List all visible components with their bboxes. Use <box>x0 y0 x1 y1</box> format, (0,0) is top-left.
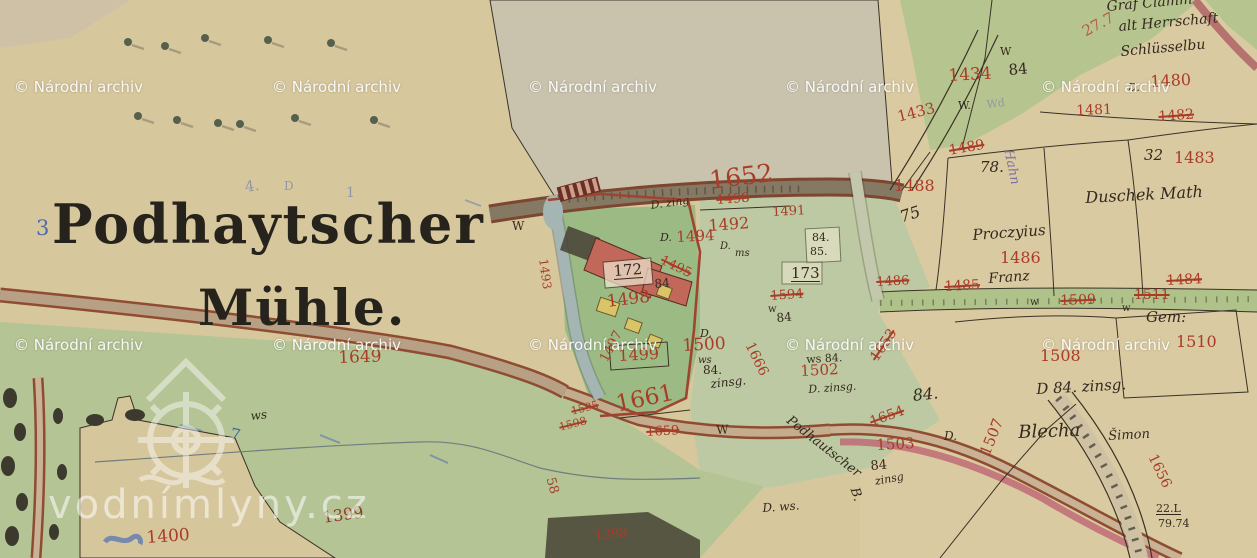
map-label: 78. <box>980 160 1004 175</box>
map-label: w <box>1122 304 1131 314</box>
map-label: 1434 <box>948 66 992 85</box>
map-label: Blecha <box>1018 422 1081 442</box>
map-label: 84 <box>654 277 670 290</box>
map-label: 32 <box>1144 148 1163 163</box>
map-label: 1510 <box>1176 334 1217 350</box>
map-label: alt Herrschaft <box>1118 11 1219 34</box>
map-label: ms <box>735 249 750 259</box>
map-label: Schlüsselbu <box>1120 38 1206 59</box>
map-label: 1507 <box>978 417 1006 458</box>
map-label: 173 <box>791 266 820 282</box>
map-label: 1398 <box>594 527 628 543</box>
map-label: Proczyius <box>972 223 1046 243</box>
map-label: 1498 <box>716 192 750 207</box>
map-label: D. <box>944 430 957 442</box>
map-label: 1481 <box>1076 103 1112 118</box>
map-label: 1594 <box>770 288 804 303</box>
map-label: D 84. zinsg. <box>1036 377 1127 397</box>
map-label: 172 <box>613 262 643 280</box>
archive-watermark: © Národní archiv <box>272 336 401 354</box>
map-label: Wd <box>986 97 1005 110</box>
map-label: D. ws. <box>762 499 800 514</box>
map-label: 79.74 <box>1158 518 1190 529</box>
map-label: 1489 <box>948 138 986 158</box>
map-label: 1491 <box>772 204 806 219</box>
map-label: 1511 <box>1134 288 1170 302</box>
map-label: Gem: <box>1146 310 1186 325</box>
map-label: W <box>512 220 524 232</box>
map-label: D. zinsg. <box>808 381 857 395</box>
map-label: Duschek Math <box>1085 184 1203 206</box>
archive-watermark: © Národní archiv <box>14 78 143 96</box>
map-title-line2: Mühle. <box>198 278 406 337</box>
map-label: 84. <box>912 385 939 404</box>
map-label: 75 <box>898 204 922 226</box>
map-label: 1500 <box>682 336 726 355</box>
watermill-logo-icon <box>118 348 278 498</box>
archive-watermark: © Národní archiv <box>272 78 401 96</box>
archive-watermark: © Národní archiv <box>1041 78 1170 96</box>
map-label: 1484 <box>1166 272 1202 288</box>
archive-watermark: © Národní archiv <box>785 336 914 354</box>
map-label: 1509 <box>1060 293 1096 308</box>
historical-cadastral-map: 143484W27.7D.1480148114821433W.WdGraf Cl… <box>0 0 1257 558</box>
map-label: D. <box>660 232 672 243</box>
map-label: 1502 <box>800 362 839 379</box>
map-label: Podhautscher <box>784 414 863 480</box>
archive-watermark: © Národní archiv <box>785 78 914 96</box>
map-label: 22.L <box>1156 503 1181 515</box>
map-label: 1433 <box>896 101 937 125</box>
map-label: w <box>1030 298 1039 308</box>
map-label: D. <box>720 242 731 252</box>
map-label: 84. <box>812 232 830 243</box>
map-label: Franz <box>988 269 1030 286</box>
archive-watermark: © Národní archiv <box>528 336 657 354</box>
map-label: 84 <box>870 459 888 473</box>
map-label: 1661 <box>614 382 676 417</box>
map-label: Hahn <box>1001 148 1021 186</box>
map-label: 84 <box>776 311 792 324</box>
map-label: W <box>716 423 729 436</box>
map-label: 1656 <box>1145 452 1173 490</box>
brand-watermark: vodnímlyny.cz <box>48 482 370 528</box>
map-label: 1654 <box>868 404 906 429</box>
map-label: 1488 <box>894 178 935 194</box>
map-label: 1659 <box>646 424 680 439</box>
map-label: W <box>1000 46 1011 57</box>
map-label: W. <box>958 100 971 111</box>
map-label: 85. <box>810 246 828 257</box>
map-label: B. <box>848 486 865 503</box>
map-label: 1666 <box>742 340 770 378</box>
map-label: zinsg. <box>710 374 747 390</box>
archive-watermark: © Národní archiv <box>1041 336 1170 354</box>
archive-watermark: © Národní archiv <box>528 78 657 96</box>
map-label: 27.7 <box>1080 10 1117 39</box>
map-label: D <box>284 180 294 192</box>
map-label: 1494 <box>676 228 715 245</box>
map-label: 1482 <box>1158 108 1195 124</box>
map-label: 1400 <box>146 527 190 547</box>
map-label: 1483 <box>1174 150 1215 166</box>
map-label: 84 <box>1008 61 1028 78</box>
archive-watermark: © Národní archiv <box>14 336 143 354</box>
map-label: 1485 <box>944 278 980 294</box>
map-label: 58 <box>544 476 561 495</box>
map-label: 1498 <box>606 289 651 311</box>
map-label: zinsg <box>874 471 905 487</box>
map-label: Šimon <box>1108 428 1150 443</box>
map-label: 3 <box>36 218 49 239</box>
map-label: D. zing <box>650 195 690 211</box>
map-label: 1493 <box>537 258 553 290</box>
map-label: Graf Clamm <box>1106 0 1193 14</box>
map-label: 1598 <box>558 415 588 432</box>
map-label: 1503 <box>876 436 915 453</box>
map-label: 1486 <box>876 274 910 289</box>
map-title-line1: Podhaytscher <box>52 192 485 256</box>
map-label: 84. <box>703 364 722 376</box>
map-label: 1486 <box>1000 250 1041 266</box>
map-label: 1652 <box>708 160 774 193</box>
